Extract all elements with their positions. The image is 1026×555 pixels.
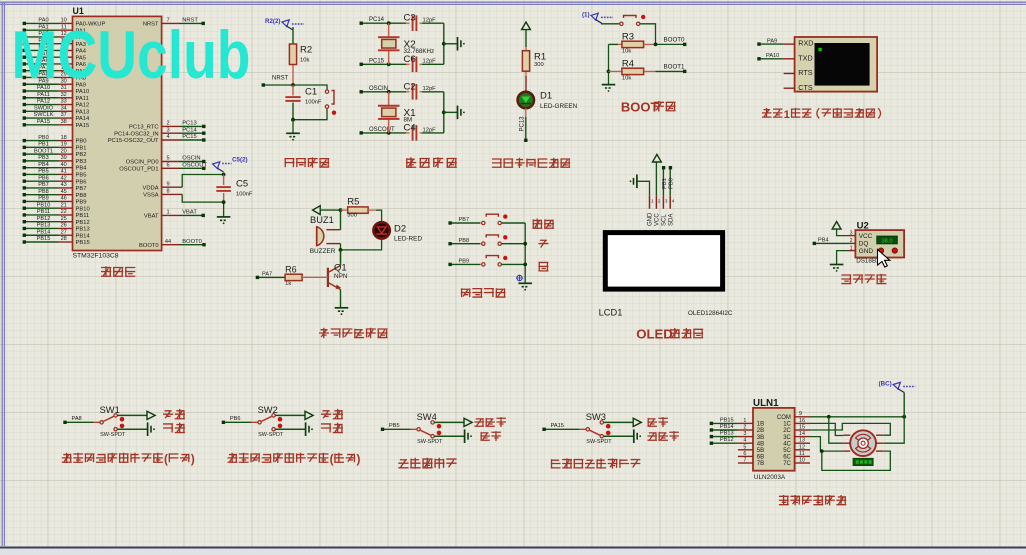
svg-text:PB0: PB0 <box>76 139 87 145</box>
svg-text:BOOT1: BOOT1 <box>34 148 53 154</box>
svg-text:4B: 4B <box>757 441 764 447</box>
svg-text:9: 9 <box>166 181 169 187</box>
svg-text:44: 44 <box>165 239 171 245</box>
svg-text:12pF: 12pF <box>423 18 437 24</box>
svg-text:12pF: 12pF <box>423 59 437 65</box>
svg-text:10k: 10k <box>300 58 309 64</box>
svg-text:): ) <box>191 453 195 466</box>
svg-text:12: 12 <box>799 444 805 450</box>
svg-text:34: 34 <box>61 105 67 111</box>
svg-text:3: 3 <box>850 230 853 236</box>
svg-text:NPN: NPN <box>334 273 348 280</box>
svg-text:R2: R2 <box>300 45 312 56</box>
svg-text:PB8: PB8 <box>459 238 470 244</box>
svg-text:): ) <box>357 453 361 466</box>
svg-text:4: 4 <box>672 199 675 204</box>
svg-text:40: 40 <box>61 162 67 168</box>
svg-text:OSCIN_PD0: OSCIN_PD0 <box>126 160 159 166</box>
svg-text:(1): (1) <box>582 11 590 18</box>
svg-text:28: 28 <box>61 236 67 242</box>
svg-text:PA15: PA15 <box>551 423 564 429</box>
svg-text:OLED: OLED <box>636 327 673 342</box>
svg-text:38.0: 38.0 <box>882 238 893 244</box>
svg-text:4C: 4C <box>783 441 791 447</box>
svg-text:C3: C3 <box>404 13 416 24</box>
svg-text:15: 15 <box>799 425 805 431</box>
svg-text:R4: R4 <box>622 59 634 70</box>
svg-text:22: 22 <box>61 209 67 215</box>
svg-text:PA11: PA11 <box>76 96 89 102</box>
svg-text:PB8: PB8 <box>38 189 49 195</box>
svg-text:PB3: PB3 <box>38 155 49 161</box>
svg-text:C6: C6 <box>404 54 416 65</box>
svg-text:PA10: PA10 <box>766 53 779 59</box>
svg-text:2: 2 <box>743 425 746 431</box>
svg-text:PA7: PA7 <box>262 272 272 278</box>
svg-text:PB10: PB10 <box>37 202 51 208</box>
svg-text:13: 13 <box>799 438 805 444</box>
svg-text:38: 38 <box>61 119 67 125</box>
svg-text:LED-RED: LED-RED <box>394 236 422 243</box>
svg-text:PB6: PB6 <box>38 175 49 181</box>
svg-text:46: 46 <box>61 196 67 202</box>
svg-text:PB11: PB11 <box>37 209 50 215</box>
svg-text:PB13: PB13 <box>720 431 734 437</box>
svg-text:PC13: PC13 <box>520 116 526 132</box>
svg-text:43: 43 <box>61 182 67 188</box>
svg-text:OSCIN: OSCIN <box>182 156 200 162</box>
svg-text:C5: C5 <box>236 179 248 190</box>
svg-text:PC14-OSC32_IN: PC14-OSC32_IN <box>114 131 158 137</box>
svg-text:VCC: VCC <box>655 213 661 226</box>
svg-text:7B: 7B <box>757 461 764 467</box>
svg-text:GND: GND <box>859 248 874 255</box>
svg-text:PB14: PB14 <box>720 424 734 430</box>
svg-text:PB13: PB13 <box>76 227 90 233</box>
svg-text:21: 21 <box>61 202 67 208</box>
svg-text:5C: 5C <box>783 448 791 454</box>
svg-text:SW3: SW3 <box>586 412 606 422</box>
svg-text:VBAT: VBAT <box>182 210 197 216</box>
svg-text:PB12: PB12 <box>720 437 734 443</box>
svg-text:1C: 1C <box>783 422 791 428</box>
svg-text:4: 4 <box>166 134 169 140</box>
svg-text:C2: C2 <box>404 81 416 92</box>
svg-text:R2(2): R2(2) <box>265 18 280 25</box>
svg-text:20: 20 <box>61 148 67 154</box>
svg-text:PC14: PC14 <box>369 17 385 23</box>
svg-text:PC15: PC15 <box>369 58 385 64</box>
svg-text:SWDIO: SWDIO <box>34 105 54 111</box>
svg-text:MCUclub: MCUclub <box>12 17 251 93</box>
svg-text:VBAT: VBAT <box>144 214 159 220</box>
svg-text:PB10: PB10 <box>76 206 90 212</box>
svg-text:BOOT0: BOOT0 <box>139 243 159 249</box>
svg-text:PB15: PB15 <box>720 417 734 423</box>
svg-text:5B: 5B <box>757 448 764 454</box>
svg-text:OLED12864I2C: OLED12864I2C <box>688 310 733 317</box>
svg-text:300: 300 <box>347 212 357 218</box>
svg-text:PB15: PB15 <box>37 236 51 242</box>
svg-text:C5(2): C5(2) <box>232 157 247 164</box>
svg-text:BUZ1: BUZ1 <box>310 215 334 225</box>
svg-text:OSCOUT: OSCOUT <box>182 163 207 169</box>
svg-text:SW-SPDT: SW-SPDT <box>258 432 284 438</box>
svg-text:COM: COM <box>777 415 791 421</box>
svg-text:PB4: PB4 <box>76 166 88 172</box>
svg-text:PB11: PB11 <box>76 213 90 219</box>
svg-text:OSCOUT_PD1: OSCOUT_PD1 <box>119 166 158 172</box>
svg-text:LCD1: LCD1 <box>599 308 623 318</box>
svg-text:PA12: PA12 <box>37 99 50 105</box>
svg-text:41: 41 <box>61 169 67 175</box>
svg-text:PB7: PB7 <box>76 186 87 192</box>
svg-text:2B: 2B <box>757 428 764 434</box>
svg-text:PB1: PB1 <box>38 142 49 148</box>
svg-text:12pF: 12pF <box>423 86 437 92</box>
svg-text:SW4: SW4 <box>417 412 437 422</box>
svg-text:PB13: PB13 <box>37 223 51 229</box>
svg-text:100nF: 100nF <box>236 192 253 198</box>
svg-text:3B: 3B <box>757 435 764 441</box>
svg-text:SW1: SW1 <box>100 405 120 415</box>
svg-text:PB12: PB12 <box>37 216 51 222</box>
svg-text:33: 33 <box>61 99 67 105</box>
svg-text:1B: 1B <box>757 422 764 428</box>
svg-text:7: 7 <box>743 458 746 464</box>
svg-text:16: 16 <box>799 418 805 424</box>
svg-text:BUZZER: BUZZER <box>310 248 336 255</box>
svg-text:10: 10 <box>799 458 805 464</box>
svg-text:PB0: PB0 <box>669 178 675 189</box>
svg-text:NRST: NRST <box>272 76 289 82</box>
svg-text:7C: 7C <box>783 461 791 467</box>
svg-text:1k: 1k <box>285 281 291 287</box>
svg-text:PB5: PB5 <box>38 169 49 175</box>
svg-text:PB6: PB6 <box>230 416 241 422</box>
svg-text:STM32F103C8: STM32F103C8 <box>73 253 119 260</box>
svg-text:9: 9 <box>799 411 802 417</box>
svg-text:PA14: PA14 <box>76 116 91 122</box>
svg-text:PB2: PB2 <box>76 152 87 158</box>
svg-text:SW2: SW2 <box>258 405 278 415</box>
svg-text:6B: 6B <box>757 455 764 461</box>
svg-text:(: ( <box>330 453 334 466</box>
svg-text:PA12: PA12 <box>76 103 90 109</box>
svg-text:BOOT1: BOOT1 <box>664 64 686 71</box>
svg-text:PA15: PA15 <box>76 123 90 129</box>
svg-text:PC15-OSC32_OUT: PC15-OSC32_OUT <box>108 138 159 144</box>
svg-text:300: 300 <box>534 62 544 68</box>
svg-text:1: 1 <box>784 109 790 121</box>
svg-text:ULN2003A: ULN2003A <box>754 474 786 481</box>
svg-text:PB4: PB4 <box>818 238 829 244</box>
svg-text:PB4: PB4 <box>38 162 49 168</box>
svg-text:PB14: PB14 <box>76 233 91 239</box>
svg-text:(BC): (BC) <box>879 381 892 388</box>
svg-text:RXD: RXD <box>798 39 813 48</box>
svg-text:1: 1 <box>166 210 169 216</box>
svg-text:PB7: PB7 <box>459 217 470 223</box>
svg-text:BOOT0: BOOT0 <box>182 239 202 245</box>
svg-text:R1: R1 <box>534 52 546 63</box>
svg-text:D1: D1 <box>540 91 552 102</box>
svg-text:PB9: PB9 <box>76 200 87 206</box>
svg-text:GND: GND <box>648 212 654 226</box>
svg-text:2: 2 <box>850 238 853 244</box>
svg-text:PB9: PB9 <box>459 259 470 265</box>
svg-text:PB8: PB8 <box>76 193 87 199</box>
svg-text:VCC: VCC <box>859 233 873 240</box>
svg-text:2C: 2C <box>783 428 791 434</box>
svg-text:OSCOUT: OSCOUT <box>369 127 395 133</box>
svg-text:PB15: PB15 <box>76 240 90 246</box>
svg-text:26: 26 <box>61 223 67 229</box>
svg-text:PC15: PC15 <box>182 134 197 140</box>
svg-text:PB14: PB14 <box>37 229 51 235</box>
svg-text:OSCIN: OSCIN <box>369 86 388 92</box>
svg-text:1: 1 <box>850 245 853 251</box>
svg-text:27: 27 <box>61 229 67 235</box>
svg-text:PB9: PB9 <box>38 196 49 202</box>
svg-text:LED-GREEN: LED-GREEN <box>540 103 578 110</box>
svg-text:PB12: PB12 <box>76 220 90 226</box>
svg-text:8: 8 <box>166 189 169 195</box>
svg-text:RTS: RTS <box>798 68 812 77</box>
svg-text:42: 42 <box>61 175 67 181</box>
svg-text:12pF: 12pF <box>423 127 437 133</box>
svg-text:PB3: PB3 <box>76 159 87 165</box>
svg-text:D2: D2 <box>394 224 406 235</box>
svg-text:PA15: PA15 <box>37 119 50 125</box>
svg-text:19: 19 <box>61 142 67 148</box>
svg-text:DQ: DQ <box>859 241 869 248</box>
svg-text:14: 14 <box>799 431 805 437</box>
svg-text:PB5: PB5 <box>76 173 87 179</box>
svg-text:(: ( <box>164 453 168 466</box>
svg-text:100nF: 100nF <box>305 100 322 106</box>
svg-text:3C: 3C <box>783 435 791 441</box>
svg-text:10k: 10k <box>622 48 631 54</box>
svg-text:PB0: PB0 <box>38 135 49 141</box>
svg-text:PC13: PC13 <box>182 121 197 127</box>
svg-text:PB6: PB6 <box>76 179 87 185</box>
svg-text:PA8: PA8 <box>72 416 82 422</box>
svg-text:SDA: SDA <box>668 214 674 226</box>
svg-text:3: 3 <box>743 431 746 437</box>
svg-text:BOOT0: BOOT0 <box>664 37 686 44</box>
svg-text:39: 39 <box>61 155 67 161</box>
svg-text:5: 5 <box>743 444 746 450</box>
svg-text:1: 1 <box>651 199 654 204</box>
svg-text:PA13: PA13 <box>76 109 90 115</box>
svg-text:2: 2 <box>658 199 661 204</box>
svg-text:SW-SPDT: SW-SPDT <box>586 439 612 445</box>
svg-text:6: 6 <box>166 163 169 169</box>
svg-text:6: 6 <box>743 451 746 457</box>
svg-text:4: 4 <box>743 438 746 444</box>
svg-text:PB1: PB1 <box>662 178 668 189</box>
svg-text:5: 5 <box>166 156 169 162</box>
svg-text:SCL: SCL <box>662 214 668 226</box>
svg-text:2: 2 <box>166 121 169 127</box>
svg-text:R6: R6 <box>285 264 297 274</box>
svg-text:SW-SPDT: SW-SPDT <box>100 432 126 438</box>
svg-text:PA9: PA9 <box>767 38 777 44</box>
svg-text:6C: 6C <box>783 455 791 461</box>
svg-text:BOOT: BOOT <box>621 100 659 115</box>
svg-text:U1: U1 <box>73 6 84 16</box>
svg-text:37: 37 <box>61 112 67 118</box>
svg-text:25: 25 <box>61 216 67 222</box>
svg-text:R5: R5 <box>347 197 359 208</box>
svg-text:SWCLK: SWCLK <box>34 112 54 118</box>
svg-text:SW-SPDT: SW-SPDT <box>417 439 443 445</box>
svg-text:10k: 10k <box>622 75 631 81</box>
svg-text:C1: C1 <box>305 87 317 98</box>
svg-text:VDDA: VDDA <box>142 185 158 191</box>
svg-text:18: 18 <box>61 135 67 141</box>
svg-text:PC14: PC14 <box>182 127 197 133</box>
svg-text:1: 1 <box>743 418 746 424</box>
svg-text:45: 45 <box>61 189 67 195</box>
svg-text:C4: C4 <box>404 122 416 133</box>
svg-text:VSSA: VSSA <box>143 193 159 199</box>
svg-text:3: 3 <box>166 127 169 133</box>
svg-text:11: 11 <box>799 451 805 457</box>
svg-text:PB5: PB5 <box>389 423 400 429</box>
svg-text:R3: R3 <box>622 32 634 43</box>
svg-text:PB7: PB7 <box>38 182 49 188</box>
svg-text:PC13_RTC: PC13_RTC <box>129 125 159 131</box>
svg-text:3: 3 <box>665 199 668 204</box>
svg-text:PB1: PB1 <box>76 145 87 151</box>
svg-text:CTS: CTS <box>798 83 813 92</box>
svg-text:TXD: TXD <box>798 53 812 62</box>
